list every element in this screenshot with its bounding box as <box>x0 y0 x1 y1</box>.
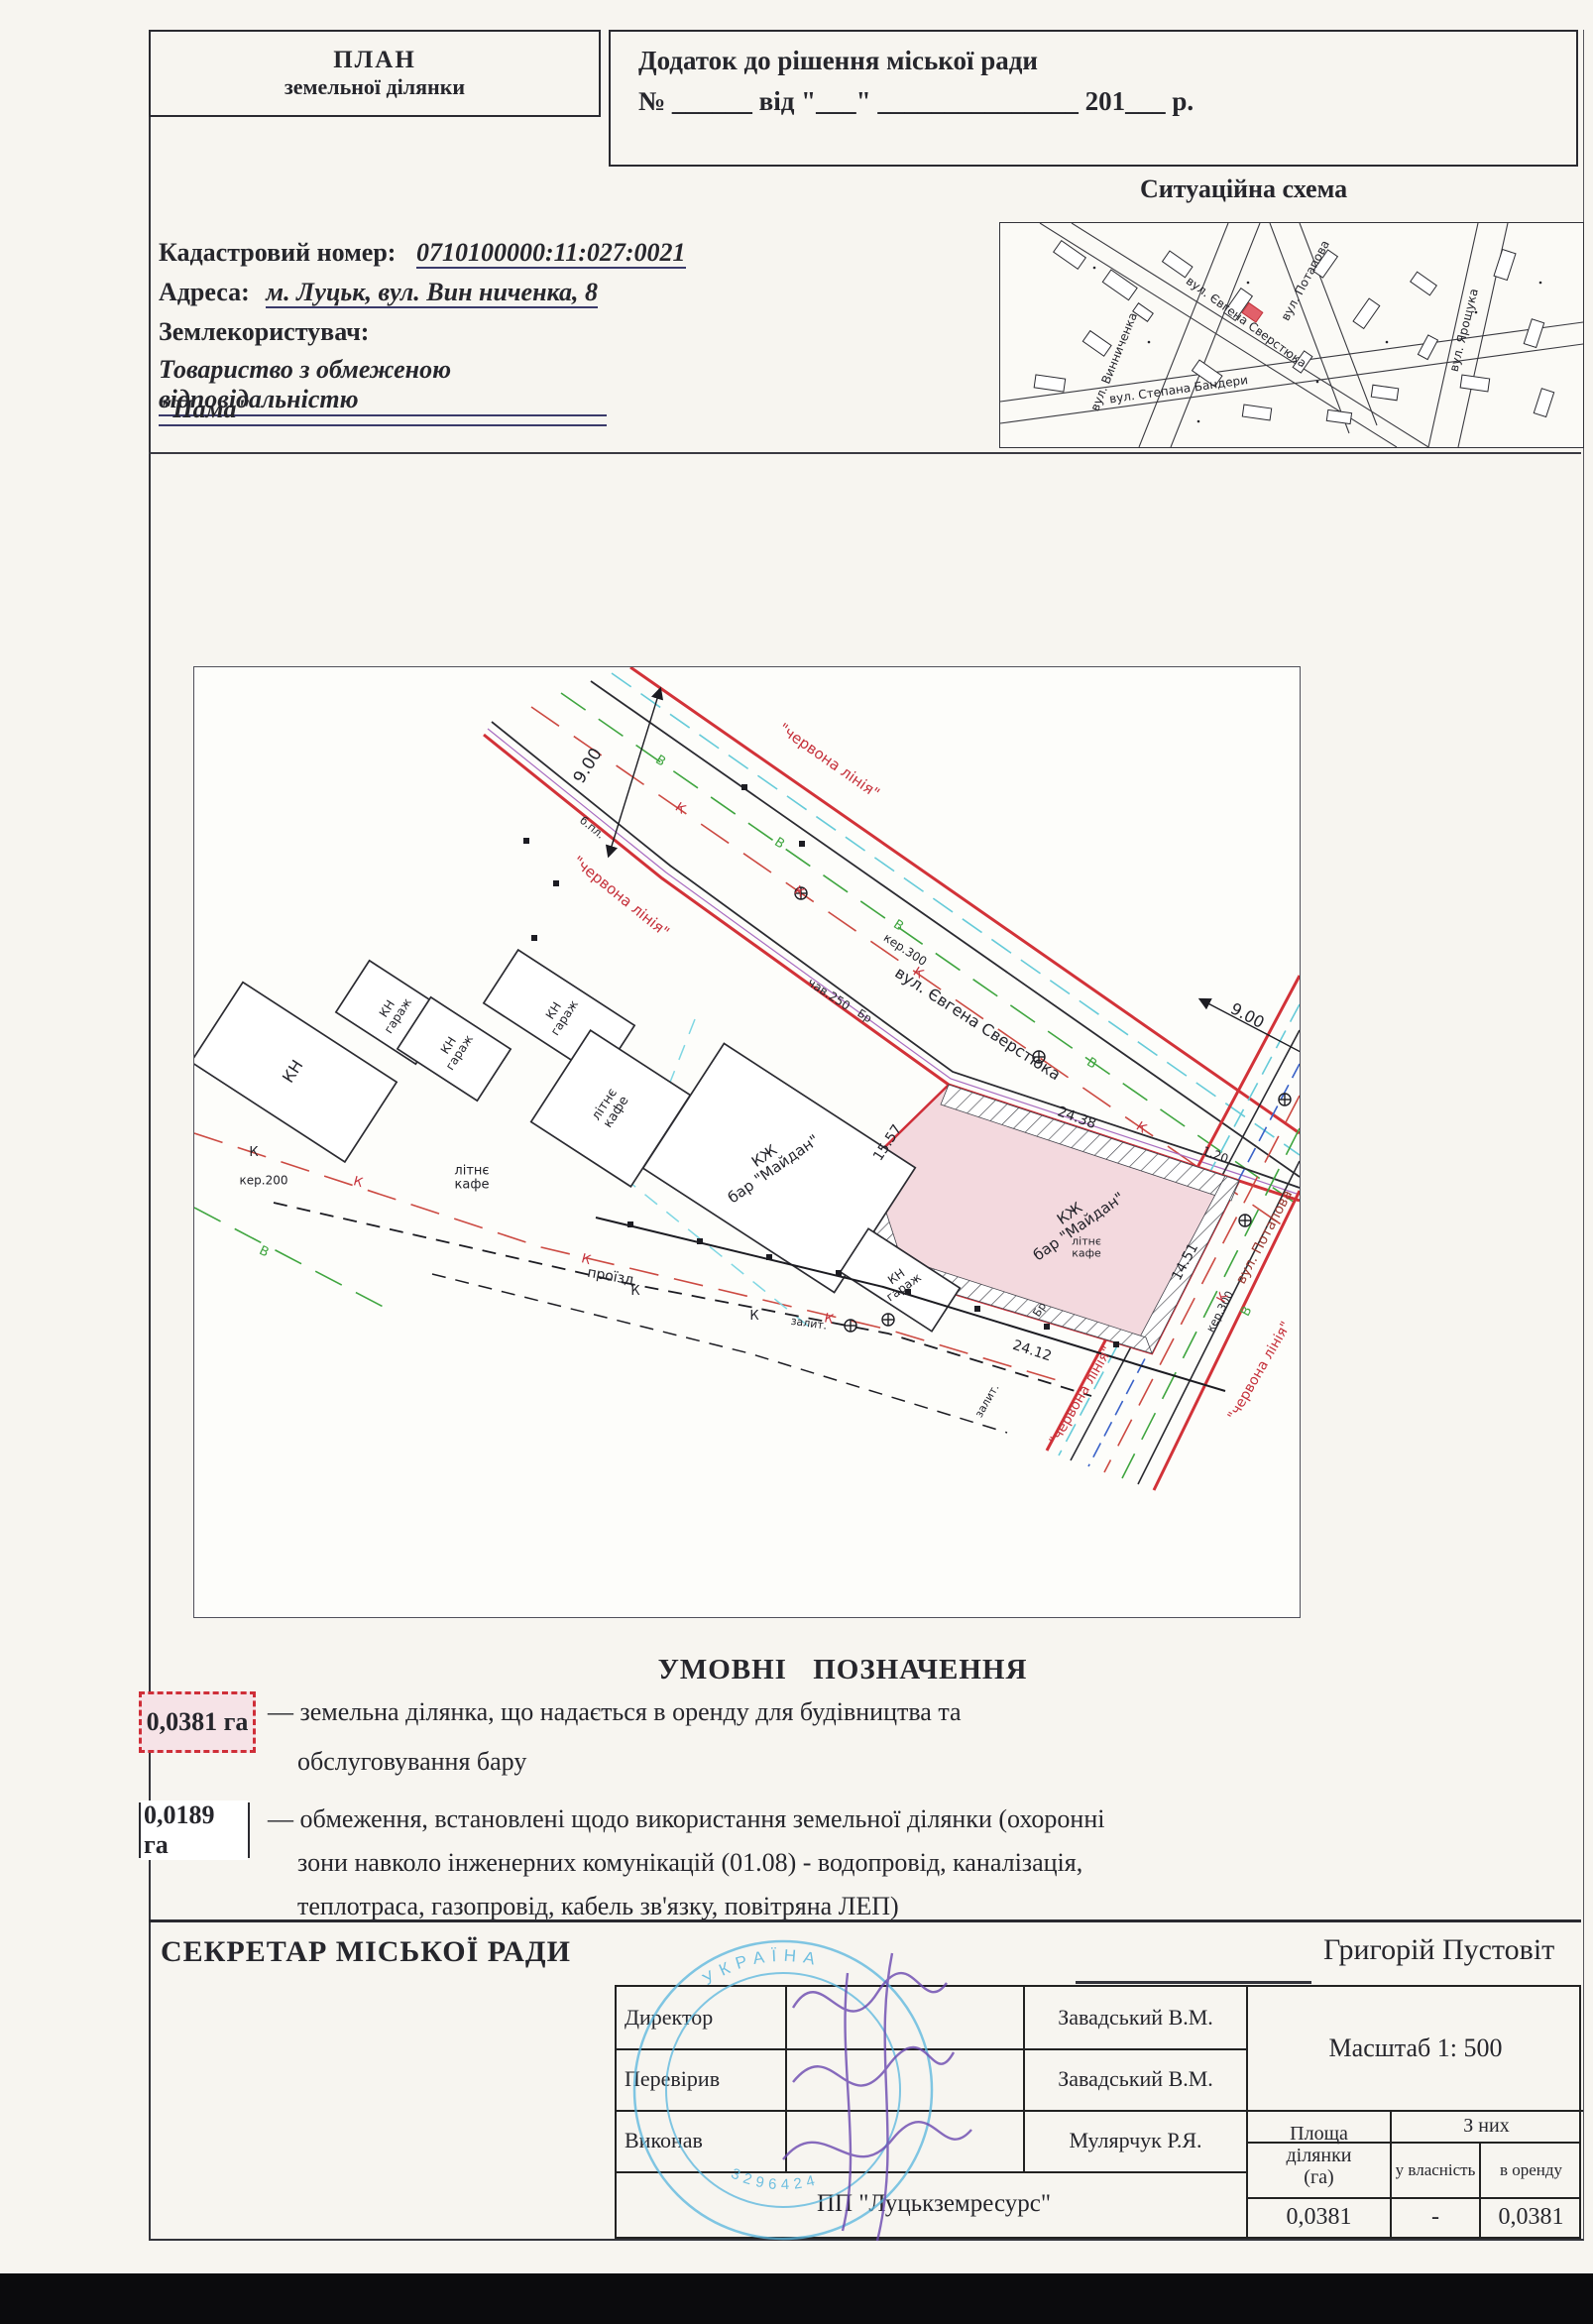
legend-restriction-text-3: теплотраса, газопровід, кабель зв'язку, … <box>297 1892 899 1921</box>
summer-cafe-label: літнєкафе <box>1072 1235 1101 1258</box>
cadastral-number-row: Кадастровий номер: 0710100000:11:027:002… <box>159 238 686 268</box>
legend-restriction-text-2: зони навколо інженерних комунікацій (01.… <box>297 1848 1082 1878</box>
ownership-value: - <box>1392 2197 1479 2237</box>
cadastral-number-label: Кадастровий номер: <box>159 238 396 267</box>
plan-linework <box>194 667 1300 1617</box>
secretary-label: СЕКРЕТАР МІСЬКОЇ РАДИ <box>161 1935 571 1969</box>
manhole-icon <box>845 1320 856 1332</box>
address-label: Адреса: <box>159 278 250 306</box>
row-director-name: Завадський В.М. <box>1025 1987 1246 2048</box>
legend-plot-symbol: 0,0381 га <box>139 1691 256 1753</box>
scale-label: Масштаб 1: 500 <box>1248 1987 1583 2110</box>
row-director-label: Директор <box>625 1987 783 2048</box>
plan-subtitle: земельної ділянки <box>284 74 465 100</box>
lease-value: 0,0381 <box>1481 2197 1581 2237</box>
address-row: Адреса: м. Луцьк, вул. Вин ниченка, 8 <box>159 278 598 307</box>
legend-plot-text-2: обслуговування бару <box>297 1747 526 1777</box>
area-value: 0,0381 <box>1248 2197 1390 2237</box>
land-plan-drawing: "червона лінія" "червона лінія" 9.00 вул… <box>193 666 1301 1618</box>
row-executed-name: Мулярчук Р.Я. <box>1025 2110 1246 2171</box>
row-checked-name: Завадський В.М. <box>1025 2048 1246 2110</box>
decision-box: Додаток до рішення міської ради № ______… <box>609 30 1578 167</box>
lease-column-header: в оренду <box>1481 2144 1581 2197</box>
situation-scheme-title: Ситуаційна схема <box>1140 174 1347 204</box>
landuser-label-row: Землекористувач: <box>159 317 369 347</box>
pipe-ker200: кер.200 <box>240 1175 288 1188</box>
legend-plot-area-value: 0,0381 га <box>147 1707 249 1737</box>
signature-blank-line <box>1076 1981 1311 1984</box>
of-them-header: З них <box>1392 2110 1581 2142</box>
ownership-column-header: у власність <box>1392 2144 1479 2197</box>
legend-plot-text-1: — земельна ділянка, що надається в оренд… <box>268 1697 962 1727</box>
landuser-label: Землекористувач: <box>159 317 369 346</box>
title-block-table: Директор Перевірив Виконав Завадський В.… <box>615 1985 1581 2239</box>
legend-restriction-text-1: — обмеження, встановлені щодо використан… <box>268 1804 1104 1834</box>
scanned-land-plan-page: ПЛАН земельної ділянки Додаток до рішенн… <box>0 0 1593 2324</box>
row-checked-label: Перевірив <box>625 2048 783 2110</box>
table-line <box>785 1987 787 2171</box>
manhole-icon <box>1279 1094 1291 1105</box>
landuser-name-quoted: "Пама" <box>159 395 251 423</box>
plan-title-box: ПЛАН земельної ділянки <box>149 30 601 117</box>
situation-map-drawing <box>1000 223 1583 447</box>
summer-cafe-label: літнєкафе <box>454 1164 489 1191</box>
legend-restriction-area-value: 0,0189 га <box>141 1801 248 1860</box>
plan-title: ПЛАН <box>333 47 416 74</box>
manhole-icon <box>1239 1215 1251 1226</box>
sewer-k-marker: К <box>630 1285 639 1299</box>
landuser-value-line2: "Пама" <box>159 395 607 426</box>
row-executed-label: Виконав <box>625 2110 783 2171</box>
situation-map: вул. Винниченка вул. Євгена Сверстюка ву… <box>999 222 1584 448</box>
sewer-k-marker: К <box>749 1310 758 1324</box>
scan-edge-bar <box>0 2273 1593 2324</box>
decision-title: Додаток до рішення міської ради <box>638 46 1576 76</box>
company-name: ПП "Луцькземресурс" <box>656 2171 1211 2237</box>
secretary-name: Григорій Пустовіт <box>1323 1933 1554 1967</box>
legend-title: УМОВНІ ПОЗНАЧЕННЯ <box>347 1654 1338 1686</box>
sewer-k-label: К <box>249 1146 258 1160</box>
area-column-header: Площаділянки(га) <box>1248 2114 1390 2197</box>
cadastral-number-value: 0710100000:11:027:0021 <box>416 238 686 269</box>
address-value: м. Луцьк, вул. Вин ниченка, 8 <box>266 278 598 308</box>
section-divider <box>149 452 1581 454</box>
footer-divider <box>149 1919 1581 1922</box>
decision-blank-line: № ______ від "___" _______________ 201__… <box>638 86 1576 117</box>
legend-restriction-symbol: 0,0189 га <box>139 1802 250 1858</box>
manhole-icon <box>882 1314 894 1326</box>
